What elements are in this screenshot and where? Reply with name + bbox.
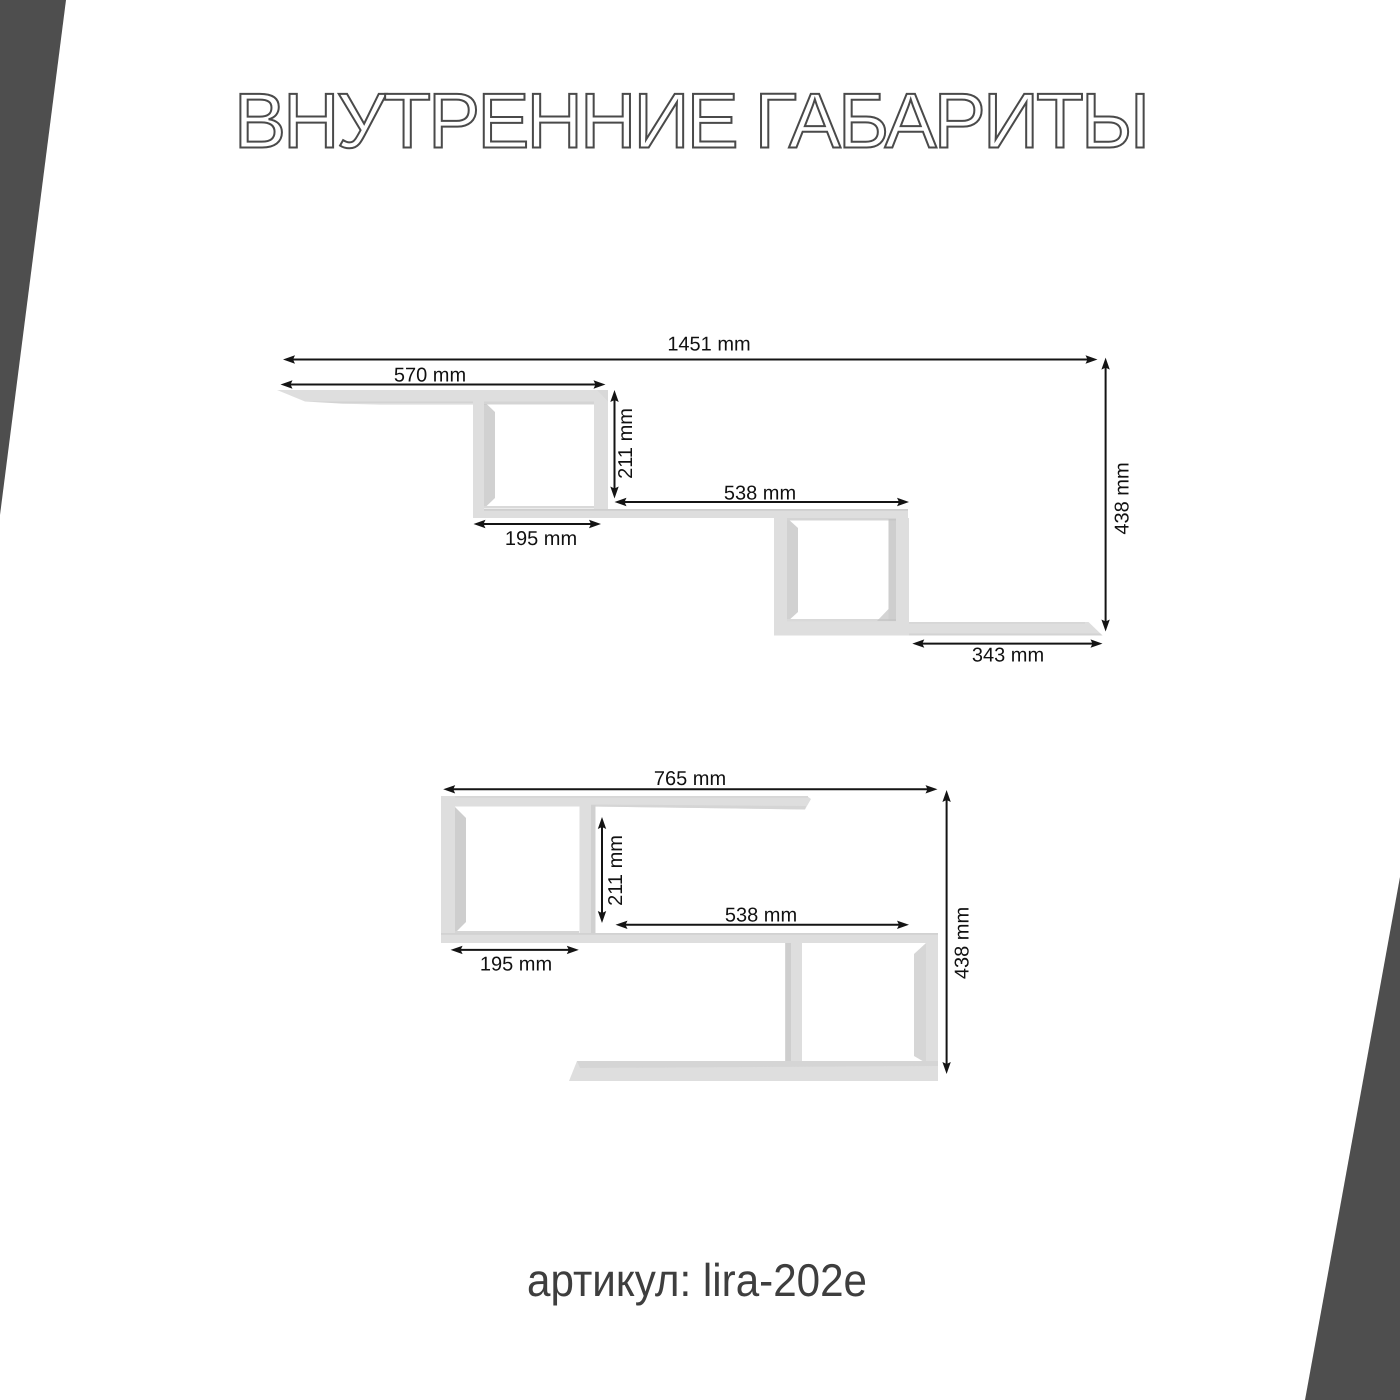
svg-text:538 mm: 538 mm <box>724 483 796 505</box>
svg-text:438 mm: 438 mm <box>952 907 974 979</box>
svg-text:195 mm: 195 mm <box>505 528 577 550</box>
svg-text:438 mm: 438 mm <box>1112 462 1134 534</box>
svg-text:343 mm: 343 mm <box>972 645 1044 667</box>
svg-text:1451 mm: 1451 mm <box>667 334 750 356</box>
svg-text:211 mm: 211 mm <box>615 408 637 479</box>
svg-text:211 mm: 211 mm <box>605 835 627 906</box>
svg-text:ВНУТРЕННИЕ ГАБАРИТЫ: ВНУТРЕННИЕ ГАБАРИТЫ <box>234 77 1150 165</box>
svg-text:765 mm: 765 mm <box>654 768 726 790</box>
svg-text:артикул: lira-202e: артикул: lira-202e <box>527 1254 867 1306</box>
svg-text:195 mm: 195 mm <box>480 954 552 976</box>
svg-text:570 mm: 570 mm <box>394 365 466 387</box>
svg-text:538 mm: 538 mm <box>725 905 797 927</box>
